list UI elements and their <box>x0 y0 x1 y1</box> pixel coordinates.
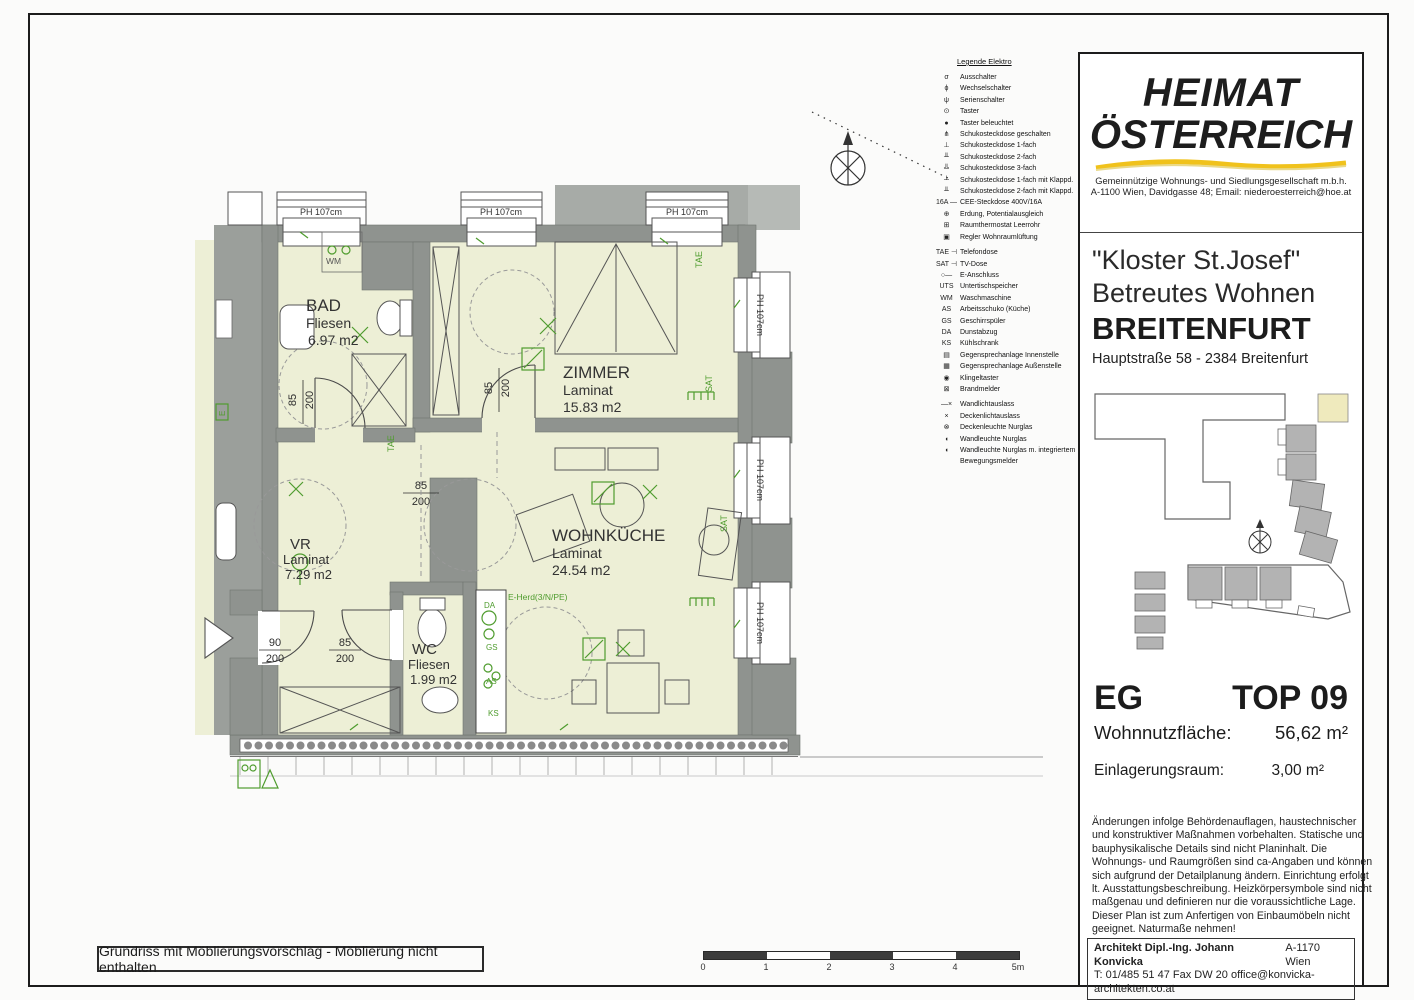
wall-lamp-motion-icon: ◖ <box>933 445 960 456</box>
divider <box>1080 232 1362 233</box>
legend-item: ▦Gegensprechanlage Außenstelle <box>933 361 1079 372</box>
socket-switched-icon: ⋔ <box>933 129 960 140</box>
architect-name: Architekt Dipl.-Ing. Johann Konvicka <box>1094 942 1285 969</box>
two-way-switch-icon: ϕ <box>933 83 960 94</box>
brand-logo: HEIMAT ÖSTERREICH Gemeinnützige Wohnungs… <box>1080 72 1362 198</box>
brand-subline1: Gemeinnützige Wohnungs- und Siedlungsges… <box>1080 176 1362 187</box>
siteplan-north-icon <box>1249 519 1271 553</box>
brand-line2: ÖSTERREICH <box>1080 114 1362 156</box>
legend-item: ⊥Schukosteckdose 1-fach <box>933 140 1079 151</box>
living-area-label: Wohnnutzfläche: <box>1094 722 1231 744</box>
architect-box: Architekt Dipl.-Ing. Johann Konvicka A-1… <box>1087 938 1355 1000</box>
storage-row: Einlagerungsraum: 3,00 m² <box>1080 762 1362 780</box>
living-area-value: 56,62 m² <box>1275 722 1348 744</box>
legend-item: ◖Wandleuchte Nurglas m. integriertem Bew… <box>933 445 1079 468</box>
washbasin-wc <box>422 687 458 713</box>
legend-item: GSGeschirrspüler <box>933 316 1079 327</box>
legend-item: —×Wandlichtauslass <box>933 399 1079 410</box>
north-arrow-icon <box>812 112 952 185</box>
svg-text:WOHNKÜCHE: WOHNKÜCHE <box>552 526 665 545</box>
intercom-outdoor-icon: ▦ <box>933 361 960 372</box>
legend-item: WMWaschmaschine <box>933 293 1079 304</box>
svg-text:E-Herd(3/N/PE): E-Herd(3/N/PE) <box>508 592 568 602</box>
svg-text:6.97 m2: 6.97 m2 <box>308 332 359 348</box>
scale-tick: 4 <box>945 962 965 972</box>
scale-tick: 3 <box>882 962 902 972</box>
legend-item: ●Taster beleuchtet <box>933 118 1079 129</box>
window-label: PH 107cm <box>755 602 765 644</box>
thermostat-icon: ⊞ <box>933 220 960 231</box>
window-label: PH 107cm <box>755 294 765 336</box>
window-label: PH 107cm <box>755 459 765 501</box>
series-switch-icon: ψ <box>933 95 960 106</box>
window-zimmer-1 <box>461 192 542 246</box>
scale-tick: 1 <box>756 962 776 972</box>
legend-item: KSKühlschrank <box>933 338 1079 349</box>
svg-text:BAD: BAD <box>306 296 341 315</box>
unit-number: TOP 09 <box>1232 679 1348 718</box>
scale-bar-segments <box>703 951 1020 960</box>
legend-item: ▤Gegensprechanlage Innenstelle <box>933 350 1079 361</box>
svg-text:SAT: SAT <box>704 375 714 392</box>
svg-text:90: 90 <box>269 637 281 649</box>
svg-text:KS: KS <box>488 709 499 718</box>
terrace <box>230 757 1043 777</box>
svg-text:E: E <box>218 411 227 416</box>
socket-1-icon: ⊥ <box>933 140 960 151</box>
svg-text:85: 85 <box>483 382 495 394</box>
legend-item: ◖Wandleuchte Nurglas <box>933 434 1079 445</box>
disclaimer-text: Änderungen infolge Behördenauflagen, hau… <box>1080 816 1386 937</box>
kitchen-socket-icon: AS <box>933 304 960 315</box>
svg-text:DA: DA <box>484 601 496 610</box>
project-line1: "Kloster St.Josef" <box>1092 244 1374 277</box>
project-title: "Kloster St.Josef" Betreutes Wohnen BREI… <box>1080 244 1386 367</box>
legend-item: ⊠Brandmelder <box>933 384 1079 395</box>
svg-text:Fliesen: Fliesen <box>306 315 351 331</box>
legend-item: 16A —CEE-Steckdose 400V/16A <box>933 197 1079 208</box>
legend-item: DADunstabzug <box>933 327 1079 338</box>
storage-value: 3,00 m² <box>1271 762 1324 780</box>
project-line2: Betreutes Wohnen <box>1092 277 1374 310</box>
electro-legend: Legende Elektro σAusschalter ϕWechselsch… <box>933 57 1079 468</box>
project-address: Hauptstraße 58 - 2384 Breitenfurt <box>1092 351 1374 367</box>
push-button-lit-icon: ● <box>933 118 960 129</box>
storage-label: Einlagerungsraum: <box>1094 762 1224 780</box>
living-area-row: Wohnnutzfläche: 56,62 m² <box>1080 722 1362 744</box>
legend-item: ⊙Taster <box>933 106 1079 117</box>
ceiling-light-outlet-icon: × <box>933 411 960 422</box>
svg-text:15.83 m2: 15.83 m2 <box>563 399 622 415</box>
window-bad <box>277 192 366 246</box>
plan-caption: Grundriss mit Möblierungsvorschlag - Möb… <box>97 946 484 972</box>
legend-item: ψSerienschalter <box>933 95 1079 106</box>
ceiling-lamp-icon: ⊗ <box>933 422 960 433</box>
brand-subline2: A-1100 Wien, Davidgasse 48; Email: niede… <box>1080 187 1362 198</box>
svg-text:Fliesen: Fliesen <box>408 657 450 672</box>
earthing-icon: ⊕ <box>933 209 960 220</box>
scale-tick: 0 <box>693 962 713 972</box>
svg-text:24.54 m2: 24.54 m2 <box>552 562 611 578</box>
extractor-icon: DA <box>933 327 960 338</box>
svg-text:85: 85 <box>339 637 351 649</box>
legend-item: ┴Schukosteckdose 1-fach mit Klappd. <box>933 175 1079 186</box>
svg-text:AS: AS <box>486 677 497 686</box>
windows-top <box>228 192 728 246</box>
svg-text:7.29 m2: 7.29 m2 <box>285 567 332 582</box>
doorbell-icon: ◉ <box>933 373 960 384</box>
svg-text:VR: VR <box>290 536 311 553</box>
architect-city: A-1170 Wien <box>1285 942 1348 969</box>
brand-swoosh-icon <box>1090 156 1352 172</box>
socket-2-flap-icon: ╨ <box>933 186 960 197</box>
svg-text:Laminat: Laminat <box>563 382 613 398</box>
floor-plan: PH 107cm PH 107cm PH 107cm PH 107cm PH 1… <box>185 95 1060 790</box>
svg-text:200: 200 <box>266 653 284 665</box>
socket-1-flap-icon: ┴ <box>933 175 960 186</box>
legend-item: ▣Regler Wohnraumlüftung <box>933 232 1079 243</box>
project-line3: BREITENFURT <box>1092 310 1374 348</box>
wall-light-outlet-icon: —× <box>933 399 960 410</box>
legend-item: σAusschalter <box>933 72 1079 83</box>
legend-item: ◉Klingeltaster <box>933 373 1079 384</box>
legend-item: UTSUntertischspeicher <box>933 281 1079 292</box>
e-connection-icon: ○— <box>933 270 960 281</box>
svg-text:1.99 m2: 1.99 m2 <box>410 672 457 687</box>
plan-sheet: PH 107cm PH 107cm PH 107cm PH 107cm PH 1… <box>0 0 1414 1000</box>
ventilation-controller-icon: ▣ <box>933 232 960 243</box>
scale-tick: 2 <box>819 962 839 972</box>
legend-item: ⊗Deckenleuchte Nurglas <box>933 422 1079 433</box>
scale-tick: 5m <box>1008 962 1028 972</box>
scale-bar: 0 1 2 3 4 5m <box>703 951 1033 977</box>
unit-row: EG TOP 09 <box>1080 679 1362 718</box>
unit-floor: EG <box>1094 679 1143 718</box>
washing-machine-icon: WM <box>933 293 960 304</box>
legend-item: ╨Schukosteckdose 2-fach mit Klappd. <box>933 186 1079 197</box>
tv-socket-icon: SAT ⊣ <box>933 259 960 270</box>
site-plan <box>1088 387 1354 672</box>
svg-text:Laminat: Laminat <box>552 545 602 561</box>
cee-socket-icon: 16A — <box>933 197 960 208</box>
window-label: PH 107cm <box>666 207 708 217</box>
window-label: PH 107cm <box>300 207 342 217</box>
svg-text:WC: WC <box>412 641 437 658</box>
dishwasher-icon: GS <box>933 316 960 327</box>
legend-item: ⊞Raumthermostat Leerrohr <box>933 220 1079 231</box>
legend-item: ⋔Schukosteckdose geschalten <box>933 129 1079 140</box>
intercom-indoor-icon: ▤ <box>933 350 960 361</box>
socket-2-icon: ╨ <box>933 152 960 163</box>
window-zimmer-2 <box>646 192 728 246</box>
legend-item: ╩Schukosteckdose 3-fach <box>933 163 1079 174</box>
toilet-bad <box>377 301 403 335</box>
legend-item: ╨Schukosteckdose 2-fach <box>933 152 1079 163</box>
svg-text:85: 85 <box>287 394 299 406</box>
legend-item: ϕWechselschalter <box>933 83 1079 94</box>
legend-item: ○—E-Anschluss <box>933 270 1079 281</box>
title-block: HEIMAT ÖSTERREICH Gemeinnützige Wohnungs… <box>1078 52 1364 987</box>
legend-item: ASArbeitsschuko (Küche) <box>933 304 1079 315</box>
fridge-icon: KS <box>933 338 960 349</box>
phone-socket-icon: TAE ⊣ <box>933 247 960 258</box>
svg-text:200: 200 <box>304 391 316 409</box>
legend-title: Legende Elektro <box>957 57 1079 66</box>
svg-text:TAE: TAE <box>694 251 704 268</box>
wm-tag: WM <box>326 256 341 266</box>
highlighted-unit <box>1318 394 1348 422</box>
svg-text:TAE: TAE <box>386 435 396 452</box>
socket-3-icon: ╩ <box>933 163 960 174</box>
window-label: PH 107cm <box>480 207 522 217</box>
svg-text:200: 200 <box>500 379 512 397</box>
legend-item: ⊕Erdung, Potentialausgleich <box>933 209 1079 220</box>
svg-text:200: 200 <box>336 653 354 665</box>
smoke-detector-icon: ⊠ <box>933 384 960 395</box>
push-button-icon: ⊙ <box>933 106 960 117</box>
brand-line1: HEIMAT <box>1080 72 1362 114</box>
svg-text:Laminat: Laminat <box>283 552 330 567</box>
svg-text:SAT: SAT <box>719 515 729 532</box>
legend-item: SAT ⊣TV-Dose <box>933 259 1079 270</box>
undersink-heater-icon: UTS <box>933 281 960 292</box>
switch-icon: σ <box>933 72 960 83</box>
legend-item: TAE ⊣Telefondose <box>933 247 1079 258</box>
svg-text:ZIMMER: ZIMMER <box>563 363 630 382</box>
wall-lamp-icon: ◖ <box>933 434 960 445</box>
legend-item: ×Deckenlichtauslass <box>933 411 1079 422</box>
svg-text:GS: GS <box>486 643 498 652</box>
architect-contact: T: 01/485 51 47 Fax DW 20 office@konvick… <box>1094 969 1348 996</box>
